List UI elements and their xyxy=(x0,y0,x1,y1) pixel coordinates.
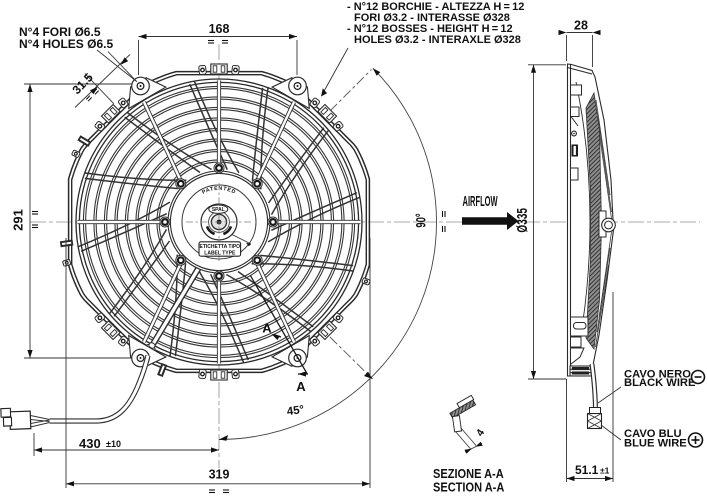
svg-text:28: 28 xyxy=(574,19,588,33)
svg-text:291: 291 xyxy=(11,209,26,231)
svg-text:LABEL TYPE: LABEL TYPE xyxy=(204,250,236,256)
svg-text:SECTION A-A: SECTION A-A xyxy=(433,479,505,494)
svg-text:45°: 45° xyxy=(286,404,305,418)
svg-text:90°: 90° xyxy=(414,213,429,228)
svg-text:HOLES Ø3.2 - INTERAXLE Ø328: HOLES Ø3.2 - INTERAXLE Ø328 xyxy=(354,34,521,46)
svg-text:ETICHETTA TIPO: ETICHETTA TIPO xyxy=(200,244,241,250)
svg-text:A: A xyxy=(296,379,306,394)
svg-text:A: A xyxy=(262,321,272,336)
svg-text:168: 168 xyxy=(209,22,230,36)
svg-text:AIRFLOW: AIRFLOW xyxy=(463,195,498,210)
svg-text:51.1: 51.1 xyxy=(575,463,599,477)
svg-text:SPAL: SPAL xyxy=(212,207,225,213)
svg-text:430: 430 xyxy=(79,436,101,451)
svg-text:BLACK WIRE: BLACK WIRE xyxy=(624,377,696,389)
svg-text:N°4 HOLES Ø6.5: N°4 HOLES Ø6.5 xyxy=(19,37,113,51)
svg-text:±1: ±1 xyxy=(600,466,610,476)
svg-text:BLUE WIRE: BLUE WIRE xyxy=(624,438,687,450)
svg-text:±10: ±10 xyxy=(106,439,121,449)
svg-text:319: 319 xyxy=(209,468,230,482)
